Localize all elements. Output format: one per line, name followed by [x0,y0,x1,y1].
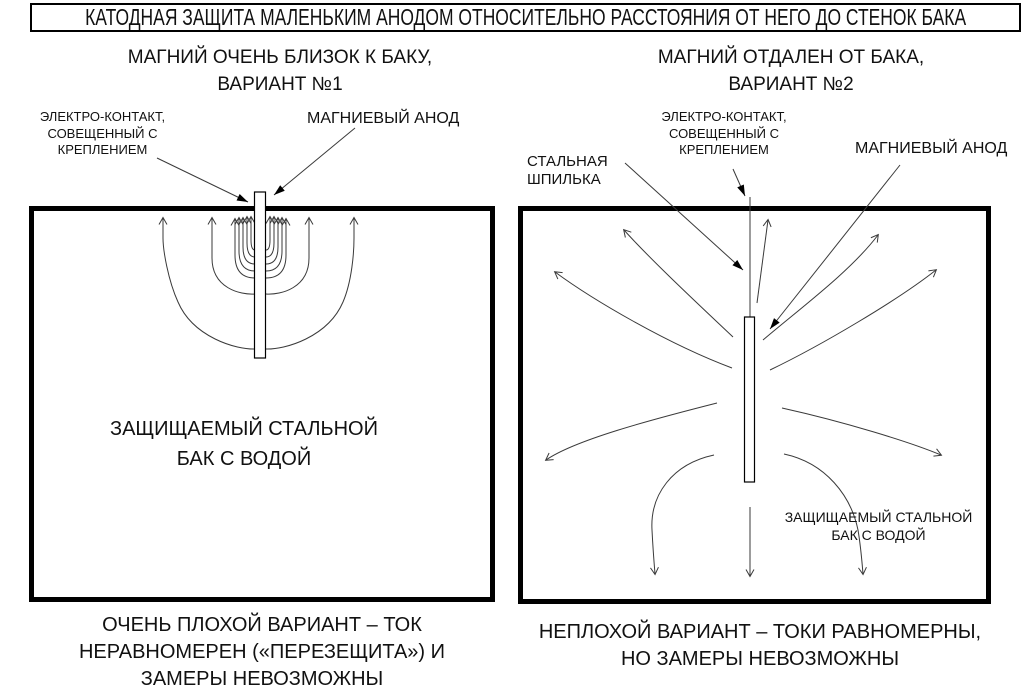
right-caption: НЕПЛОХОЙ ВАРИАНТ – ТОКИ РАВНОМЕРНЫ, НО З… [520,619,1000,673]
left-caption-line1: ОЧЕНЬ ПЛОХОЙ ВАРИАНТ – ТОК [32,612,492,639]
leader-left-anode [274,128,355,195]
left-contact-label-line3: КРЕПЛЕНИЕМ [30,142,175,159]
right-tank-label-line2: БАК С ВОДОЙ [778,527,979,545]
leader-left-contact [157,158,248,202]
right-stud-label-line2: ШПИЛЬКА [527,171,627,189]
left-contact-label: ЭЛЕКТРО-КОНТАКТ, СОВЕЩЕННЫЙ С КРЕПЛЕНИЕМ [30,109,175,159]
cathodic-protection-diagram: КАТОДНАЯ ЗАЩИТА МАЛЕНЬКИМ АНОДОМ ОТНОСИТ… [0,0,1024,699]
leader-right-contact [733,169,745,196]
right-caption-line1: НЕПЛОХОЙ ВАРИАНТ – ТОКИ РАВНОМЕРНЫ, [520,619,1000,646]
right-stud-label-line1: СТАЛЬНАЯ [527,153,627,171]
right-heading-line1: МАГНИЙ ОТДАЛЕН ОТ БАКА, [591,44,991,71]
right-tank-label: ЗАЩИЩАЕМЫЙ СТАЛЬНОЙ БАК С ВОДОЙ [778,509,979,544]
left-contact-label-line1: ЭЛЕКТРО-КОНТАКТ, [30,109,175,126]
title-bar: КАТОДНАЯ ЗАЩИТА МАЛЕНЬКИМ АНОДОМ ОТНОСИТ… [30,3,1021,32]
left-heading-line1: МАГНИЙ ОЧЕНЬ БЛИЗОК К БАКУ, [80,44,480,71]
left-tank-label: ЗАЩИЩАЕМЫЙ СТАЛЬНОЙ БАК С ВОДОЙ [44,414,444,474]
right-stud-label: СТАЛЬНАЯ ШПИЛЬКА [527,153,627,189]
left-heading: МАГНИЙ ОЧЕНЬ БЛИЗОК К БАКУ, ВАРИАНТ №1 [80,44,480,98]
left-tank-label-line2: БАК С ВОДОЙ [44,444,444,474]
left-contact-label-line2: СОВЕЩЕННЫЙ С [30,126,175,143]
left-tank-label-line1: ЗАЩИЩАЕМЫЙ СТАЛЬНОЙ [44,414,444,444]
right-contact-label-line3: КРЕПЛЕНИЕМ [649,142,799,159]
right-anode-label: МАГНИЕВЫЙ АНОД [855,140,1007,158]
right-contact-label-line2: СОВЕЩЕННЫЙ С [649,126,799,143]
right-heading-line2: ВАРИАНТ №2 [591,71,991,98]
tank-box-left [29,206,495,602]
right-caption-line2: НО ЗАМЕРЫ НЕВОЗМОЖНЫ [520,646,1000,673]
left-caption-line3: ЗАМЕРЫ НЕВОЗМОЖНЫ [32,666,492,693]
page-title: КАТОДНАЯ ЗАЩИТА МАЛЕНЬКИМ АНОДОМ ОТНОСИТ… [85,4,966,31]
right-contact-label: ЭЛЕКТРО-КОНТАКТ, СОВЕЩЕННЫЙ С КРЕПЛЕНИЕМ [649,109,799,159]
left-caption-line2: НЕРАВНОМЕРЕН («ПЕРЕЗЕЩИТА») И [32,639,492,666]
left-anode-label: МАГНИЕВЫЙ АНОД [307,110,459,128]
right-contact-label-line1: ЭЛЕКТРО-КОНТАКТ, [649,109,799,126]
left-heading-line2: ВАРИАНТ №1 [80,71,480,98]
left-caption: ОЧЕНЬ ПЛОХОЙ ВАРИАНТ – ТОК НЕРАВНОМЕРЕН … [32,612,492,693]
right-heading: МАГНИЙ ОТДАЛЕН ОТ БАКА, ВАРИАНТ №2 [591,44,991,98]
right-tank-label-line1: ЗАЩИЩАЕМЫЙ СТАЛЬНОЙ [778,509,979,527]
tank-box-right [518,206,991,604]
